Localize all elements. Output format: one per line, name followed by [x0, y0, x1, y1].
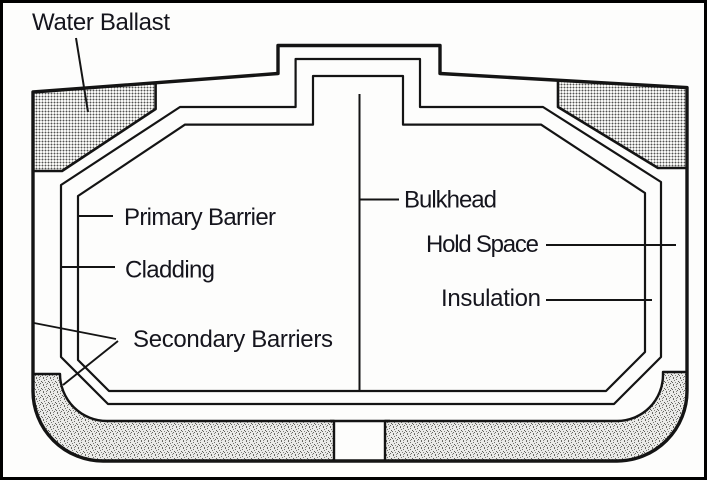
svg-text:Hold Space: Hold Space — [426, 231, 539, 258]
svg-text:Insulation: Insulation — [441, 285, 541, 312]
svg-text:Water Ballast: Water Ballast — [32, 9, 170, 36]
svg-text:Bulkhead: Bulkhead — [404, 187, 497, 214]
svg-text:Secondary Barriers: Secondary Barriers — [133, 326, 333, 353]
svg-text:Cladding: Cladding — [125, 257, 215, 284]
svg-text:Primary Barrier: Primary Barrier — [124, 204, 276, 231]
